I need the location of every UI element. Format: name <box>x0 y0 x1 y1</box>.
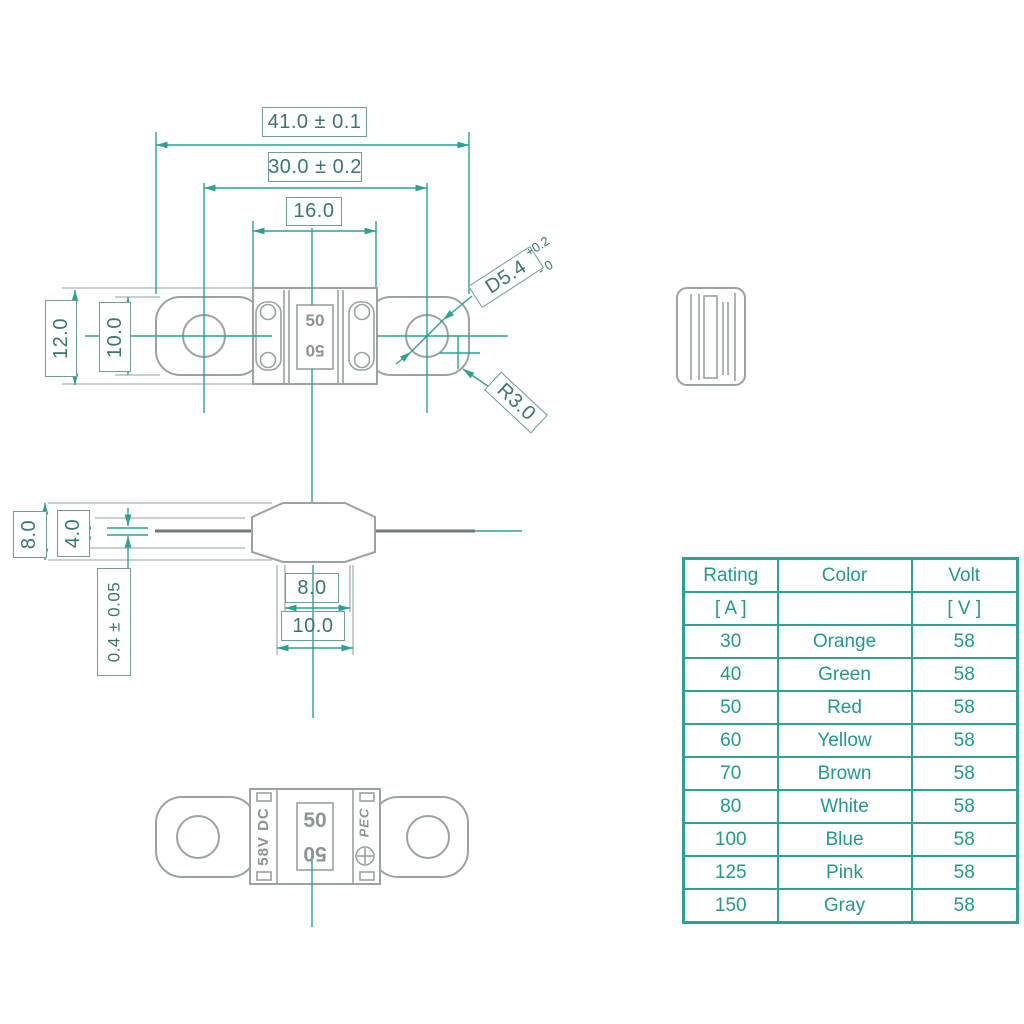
bottom-rating-marking-mirrored: 50 <box>299 838 331 868</box>
table-row: 150Gray58 <box>684 889 1018 923</box>
table-unit-row: [ A ] [ V ] <box>684 592 1018 625</box>
table-row: 100Blue58 <box>684 823 1018 856</box>
table-cell-volt: 58 <box>912 691 1018 724</box>
table-cell-rating: 70 <box>684 757 778 790</box>
table-row: 70Brown58 <box>684 757 1018 790</box>
table-header-row: Rating Color Volt <box>684 559 1018 593</box>
table-cell-color: Yellow <box>778 724 912 757</box>
side-body <box>252 503 375 562</box>
top-rating-marking-mirrored: 50 <box>299 336 331 364</box>
dim-base-inner: 8.0 <box>285 573 339 603</box>
dim-body-height: 12.0 <box>45 300 77 377</box>
col-unit-rating: [ A ] <box>684 592 778 625</box>
bottom-rating-marking: 50 <box>299 806 331 836</box>
table-cell-rating: 60 <box>684 724 778 757</box>
dim-base-outer: 10.0 <box>281 611 345 641</box>
table-cell-volt: 58 <box>912 658 1018 691</box>
dim-body-width: 16.0 <box>286 197 342 226</box>
table-row: 80White58 <box>684 790 1018 823</box>
table-cell-rating: 50 <box>684 691 778 724</box>
table-cell-rating: 125 <box>684 856 778 889</box>
table-cell-volt: 58 <box>912 757 1018 790</box>
col-header-volt: Volt <box>912 559 1018 593</box>
dim-blade-thickness: 0.4 ± 0.05 <box>97 568 131 676</box>
polarity-plus-icon <box>356 847 374 865</box>
brand-logo: PEC <box>351 797 377 847</box>
col-unit-color <box>778 592 912 625</box>
top-rating-marking: 50 <box>299 308 331 334</box>
table-cell-rating: 150 <box>684 889 778 923</box>
table-cell-rating: 80 <box>684 790 778 823</box>
voltage-marking: 58V DC <box>246 794 280 878</box>
fuse-dimension-drawing: 41.0 ± 0.1 30.0 ± 0.2 16.0 12.0 10.0 D5.… <box>0 0 1024 1024</box>
dim-inner-height: 4.0 <box>57 510 90 557</box>
table-cell-volt: 58 <box>912 724 1018 757</box>
table-row: 30Orange58 <box>684 625 1018 658</box>
end-view <box>677 288 745 385</box>
table-cell-volt: 58 <box>912 823 1018 856</box>
table-row: 50Red58 <box>684 691 1018 724</box>
col-unit-volt: [ V ] <box>912 592 1018 625</box>
dim-hole-spacing: 30.0 ± 0.2 <box>268 152 362 182</box>
table-cell-color: Orange <box>778 625 912 658</box>
table-cell-volt: 58 <box>912 856 1018 889</box>
right-bolt-hole <box>407 816 449 858</box>
table-cell-color: White <box>778 790 912 823</box>
col-header-color: Color <box>778 559 912 593</box>
table-cell-color: Blue <box>778 823 912 856</box>
table-cell-color: Gray <box>778 889 912 923</box>
table-row: 60Yellow58 <box>684 724 1018 757</box>
table-cell-volt: 58 <box>912 790 1018 823</box>
table-cell-rating: 100 <box>684 823 778 856</box>
table-cell-rating: 30 <box>684 625 778 658</box>
table-cell-color: Pink <box>778 856 912 889</box>
table-cell-volt: 58 <box>912 889 1018 923</box>
left-bolt-hole <box>177 816 219 858</box>
ratings-table: Rating Color Volt [ A ] [ V ] 30Orange58… <box>682 557 1016 901</box>
table-cell-rating: 40 <box>684 658 778 691</box>
dim-overall-length: 41.0 ± 0.1 <box>262 107 367 137</box>
table-cell-color: Brown <box>778 757 912 790</box>
table-cell-color: Red <box>778 691 912 724</box>
dim-end-height: 8.0 <box>13 511 47 558</box>
table-cell-color: Green <box>778 658 912 691</box>
table-body: 30Orange5840Green5850Red5860Yellow5870Br… <box>684 625 1018 923</box>
dim-terminal-height: 10.0 <box>99 302 131 372</box>
table-row: 125Pink58 <box>684 856 1018 889</box>
table-cell-volt: 58 <box>912 625 1018 658</box>
table-row: 40Green58 <box>684 658 1018 691</box>
col-header-rating: Rating <box>684 559 778 593</box>
